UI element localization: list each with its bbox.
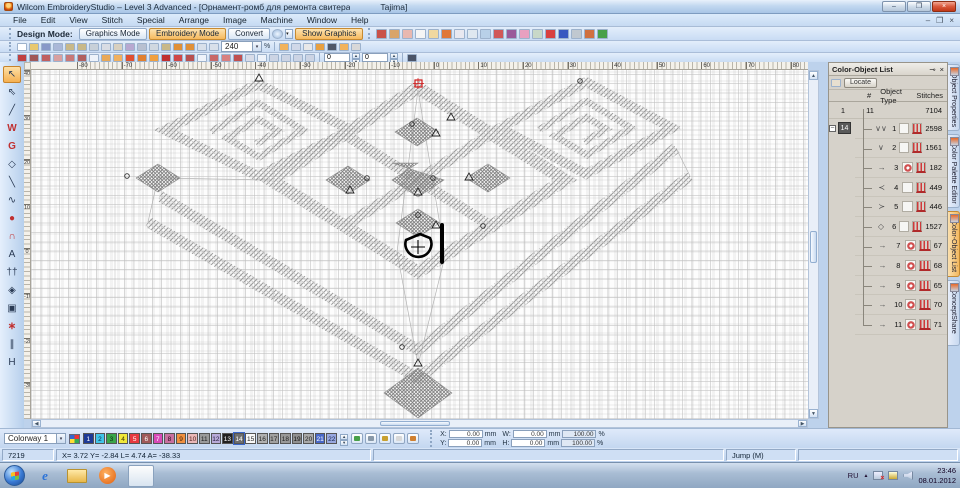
menu-item[interactable]: Window <box>300 14 344 27</box>
redo-icon[interactable] <box>185 43 195 51</box>
color-swatch[interactable]: 14 <box>234 433 245 444</box>
ruler-label: -20 <box>24 338 30 383</box>
object-stitch-count: 65 <box>934 281 947 290</box>
object-number: 4 <box>891 183 902 192</box>
import-icon[interactable] <box>65 43 75 51</box>
stemstitch-icon[interactable] <box>65 54 75 62</box>
globe-dropdown-icon[interactable]: ▾ <box>285 29 293 39</box>
object-shape-glyph: ∨∨ <box>873 124 889 133</box>
zoom-combo[interactable]: 240 ▾ <box>221 41 262 52</box>
buddy-tool[interactable]: †† <box>3 264 21 281</box>
toolbar-separator <box>402 53 403 62</box>
vertical-scroll-thumb[interactable] <box>810 231 817 263</box>
object-number: 8 <box>892 261 904 270</box>
ruler-label: 0 <box>434 62 479 69</box>
skew-stepper[interactable]: ▲▼ <box>390 53 398 63</box>
sculpture-run-icon[interactable] <box>77 54 87 62</box>
object-stitch-count: 1561 <box>925 143 947 152</box>
stitch-toolbar: ▲▼ ▲▼ <box>0 53 960 62</box>
sep2[interactable] <box>197 54 207 62</box>
filter-icon[interactable] <box>327 43 337 51</box>
ruler-label: 40 <box>612 62 657 69</box>
zoom-box-icon[interactable] <box>197 43 207 51</box>
motif-run-icon[interactable] <box>41 54 51 62</box>
title-bar: Wilcom EmbroideryStudio – Level 3 Advanc… <box>0 0 960 14</box>
color-swatch[interactable]: 13 <box>222 433 233 444</box>
object-shape-glyph: → <box>873 241 892 250</box>
locate-button[interactable]: Locate <box>844 78 877 88</box>
col-stitches[interactable]: Stitches <box>916 91 947 100</box>
paste-icon[interactable] <box>161 43 171 51</box>
ruler-label: -70 <box>122 62 167 69</box>
object-shape-glyph: → <box>873 261 892 270</box>
object-stitch-count: 67 <box>934 241 947 250</box>
summary-row[interactable]: 1 11 7104 <box>829 102 947 119</box>
zoom-icon[interactable] <box>209 43 219 51</box>
hoop-globe-icon[interactable] <box>272 29 283 39</box>
col-number[interactable]: # <box>867 91 880 100</box>
color-swatch[interactable]: 9 <box>176 433 187 444</box>
show-picture-icon[interactable] <box>480 29 491 39</box>
taskbar: e▶ RU ▲ 23:46 08.01.2012 <box>0 462 960 488</box>
ruler-label: -40 <box>255 62 300 69</box>
scroll-right-icon[interactable]: ▶ <box>798 420 807 427</box>
stitch-type-icon <box>919 299 931 310</box>
color-swatch[interactable]: 4 <box>118 433 129 444</box>
object-shape-glyph: → <box>873 281 892 290</box>
menu-bar: FileEditViewStitchSpecialArrangeImageMac… <box>0 14 960 27</box>
lettering-w-tool[interactable]: W <box>3 120 21 137</box>
write-machine-icon[interactable] <box>125 43 135 51</box>
menu-item[interactable]: Arrange <box>172 14 216 27</box>
menu-item[interactable]: Image <box>216 14 254 27</box>
tab-conceptshare[interactable]: ConceptShare <box>948 280 960 346</box>
convert-button[interactable]: Convert <box>228 28 270 40</box>
color-swatch[interactable]: 15 <box>245 433 256 444</box>
stitch-type-icon <box>916 201 927 212</box>
stitch-type-icon <box>919 260 931 271</box>
ruler-label: 10 <box>478 62 523 69</box>
menu-item[interactable]: Machine <box>254 14 300 27</box>
ruler-label: -30 <box>24 382 30 419</box>
object-type-icon <box>905 299 917 310</box>
zigzag-icon[interactable] <box>137 54 147 62</box>
object-shape-glyph: → <box>873 300 892 309</box>
object-stitch-count: 2598 <box>925 124 947 133</box>
undo-icon[interactable] <box>173 43 183 51</box>
show-flower-icon[interactable] <box>519 29 530 39</box>
plant-icon[interactable] <box>597 29 608 39</box>
swatch-stepper[interactable]: ▲▼ <box>340 434 348 444</box>
color-list-icon[interactable] <box>545 29 556 39</box>
show-grid-icon[interactable] <box>454 29 465 39</box>
color-swatch[interactable]: 19 <box>292 433 303 444</box>
doc-window-control[interactable]: × <box>949 16 954 25</box>
select-tool[interactable]: ↖ <box>3 66 21 83</box>
print-preview-icon[interactable] <box>101 43 111 51</box>
y-field[interactable]: 0.00 <box>448 439 482 447</box>
vertical-scrollbar[interactable]: ▲ ▼ <box>808 70 819 419</box>
object-shape-glyph: ∨ <box>873 143 889 152</box>
mirror-v-icon[interactable] <box>281 54 291 62</box>
satin-icon[interactable] <box>101 54 111 62</box>
ruler-label: -10 <box>24 293 30 338</box>
transparent-icon[interactable] <box>393 433 405 444</box>
colorway-dropdown-icon[interactable]: ▾ <box>56 434 65 443</box>
show-needle-points-icon[interactable] <box>441 29 452 39</box>
scroll-down-icon[interactable]: ▼ <box>809 409 818 418</box>
ruler-label: -60 <box>166 62 211 69</box>
menu-item[interactable]: File <box>6 14 34 27</box>
object-type-icon <box>899 221 909 232</box>
restore-button[interactable]: ❐ <box>907 1 931 12</box>
object-shape-glyph: → <box>873 163 891 172</box>
network-icon[interactable] <box>873 471 883 480</box>
ruler-label: -80 <box>77 62 122 69</box>
close-button[interactable]: × <box>932 1 956 12</box>
ruler-label: 20 <box>24 159 30 204</box>
print-icon[interactable] <box>89 43 99 51</box>
color-swatch[interactable]: 6 <box>141 433 152 444</box>
object-stitch-count: 182 <box>929 163 947 172</box>
ruler-label: 70 <box>746 62 791 69</box>
taskbar-media-player[interactable]: ▶ <box>99 467 116 484</box>
sep1[interactable] <box>89 54 99 62</box>
status-spacer <box>373 449 724 461</box>
object-number: 7 <box>892 241 904 250</box>
ruler-label: 20 <box>523 62 568 69</box>
ellipse-tool[interactable]: ● <box>3 210 21 227</box>
arch-tool[interactable]: ∩ <box>3 228 21 245</box>
fancy-fill-icon[interactable] <box>185 54 195 62</box>
object-stitch-count: 1527 <box>925 222 947 231</box>
pointer-corner-icon[interactable] <box>428 29 439 39</box>
swap-colors-icon[interactable] <box>351 433 363 444</box>
object-type-icon <box>899 123 909 134</box>
embroidery-design <box>31 70 808 419</box>
ruler-label: 10 <box>24 204 30 249</box>
object-rows: – 14 ∨∨ 1 2598 ∨ 2 1561 <box>855 119 947 335</box>
graphics-mode-button[interactable]: Graphics Mode <box>79 28 147 40</box>
colorway-combo[interactable]: Colorway 1 ▾ <box>4 433 66 444</box>
width-percent-field[interactable]: 100.00 <box>562 430 596 438</box>
design-canvas[interactable] <box>31 70 808 419</box>
cabinet-icon[interactable] <box>407 433 419 444</box>
toolbox: ↖⇖╱WG◇╲∿●∩A††◈▣∗∥H <box>0 62 24 428</box>
wave-fill-icon[interactable] <box>221 54 231 62</box>
update-icon[interactable] <box>888 471 898 480</box>
object-number: 6 <box>889 222 899 231</box>
object-shape-glyph: → <box>873 320 892 329</box>
stitch-type-icon <box>912 123 922 134</box>
object-type-icon <box>902 182 913 193</box>
ruler-label: 60 <box>701 62 746 69</box>
skew-field[interactable] <box>362 53 388 62</box>
object-number: 9 <box>892 281 904 290</box>
ruler-label: -50 <box>211 62 256 69</box>
pointer-coordinates: X= 3.72 Y= -2.84 L= 4.74 A= -38.33 <box>56 449 371 461</box>
star-tool[interactable]: ∗ <box>3 318 21 335</box>
tatami-icon[interactable] <box>113 54 123 62</box>
zoom-value[interactable]: 240 <box>222 42 252 51</box>
object-stitch-count: 446 <box>929 202 947 211</box>
lettering-tool[interactable]: A <box>3 246 21 263</box>
tray-expand-icon[interactable]: ▲ <box>864 473 869 479</box>
ruler-label: -30 <box>300 62 345 69</box>
flexi-split-icon[interactable] <box>173 54 183 62</box>
width-field[interactable]: 0.00 <box>513 430 547 438</box>
open-curve-tool[interactable]: ∿ <box>3 192 21 209</box>
toolbar-grip <box>368 28 371 38</box>
toolbar-separator <box>319 53 320 62</box>
stitch-type-icon <box>916 162 927 173</box>
run-stitch-icon[interactable] <box>17 54 27 62</box>
remove-color-icon[interactable] <box>365 433 377 444</box>
object-shape-glyph: ◇ <box>873 222 889 231</box>
shapes-icon[interactable] <box>584 29 595 39</box>
start-button[interactable] <box>4 465 25 486</box>
export-icon[interactable] <box>77 43 87 51</box>
zoom-percent-label: % <box>264 43 270 50</box>
status-spacer <box>798 449 958 461</box>
color-group-badge[interactable]: 14 <box>838 122 851 134</box>
color-swatch[interactable]: 8 <box>164 433 175 444</box>
object-shape-glyph: ≻ <box>873 202 891 211</box>
object-type-icon <box>905 280 917 291</box>
color-swatch[interactable]: 17 <box>269 433 280 444</box>
stitch-type-icon <box>912 221 922 232</box>
language-indicator[interactable]: RU <box>848 471 859 480</box>
stitch-type-icon <box>919 280 931 291</box>
contour-icon[interactable] <box>161 54 171 62</box>
ruler-label: 30 <box>24 115 30 160</box>
list-filter-icon[interactable] <box>831 79 841 87</box>
handle-tool[interactable]: H <box>3 354 21 371</box>
dye-bucket-icon[interactable] <box>379 433 391 444</box>
triple-run-icon[interactable] <box>29 54 39 62</box>
taskbar-explorer[interactable] <box>67 469 87 483</box>
layout-icon[interactable] <box>407 54 417 62</box>
scroll-up-icon[interactable]: ▲ <box>809 71 818 80</box>
design-mode-label: Design Mode: <box>17 29 73 39</box>
auto-scroll-icon[interactable] <box>303 43 313 51</box>
object-type-icon <box>905 260 917 271</box>
e-stitch-icon[interactable] <box>125 54 135 62</box>
ruler-label: 50 <box>657 62 702 69</box>
panel-title-bar: Color-Object List ⊸ × <box>829 63 947 76</box>
machine-name: Tajima] <box>380 2 407 12</box>
zoom-dropdown-icon[interactable]: ▾ <box>252 42 261 51</box>
tab-object-properties[interactable]: Object Properties <box>948 64 960 131</box>
knife-tool[interactable]: ╱ <box>3 102 21 119</box>
stitch-count: 7219 <box>2 449 54 461</box>
height-percent-field[interactable]: 100.00 <box>561 439 595 447</box>
color-swatch[interactable]: 21 <box>315 433 326 444</box>
object-row-11[interactable]: → 11 71 <box>855 315 947 335</box>
polygon-tool[interactable]: ◇ <box>3 156 21 173</box>
show-beads-icon[interactable] <box>493 29 504 39</box>
horizontal-scrollbar[interactable]: ◀ ▶ <box>31 419 808 428</box>
color-swatch[interactable]: 12 <box>211 433 222 444</box>
doc-window-control[interactable]: ❐ <box>936 16 943 25</box>
toolbar-grip <box>9 54 12 61</box>
stitch-type-icon <box>916 182 927 193</box>
status-bar: 7219 X= 3.72 Y= -2.84 L= 4.74 A= -38.33 … <box>0 448 960 462</box>
new-icon[interactable] <box>17 43 27 51</box>
save-icon[interactable] <box>41 43 51 51</box>
object-stitch-count: 68 <box>934 261 947 270</box>
menu-item[interactable]: View <box>62 14 94 27</box>
redraw-icon[interactable] <box>291 43 301 51</box>
standard-toolbar: 240 ▾ % <box>0 41 960 53</box>
color-swatch[interactable]: 16 <box>257 433 268 444</box>
toolbar-grip <box>9 42 12 51</box>
toolbar-separator <box>274 42 275 51</box>
height-field[interactable]: 0.00 <box>511 439 545 447</box>
x-field[interactable]: 0.00 <box>449 430 483 438</box>
object-number: 2 <box>889 143 899 152</box>
scan-icon[interactable] <box>113 43 123 51</box>
clock[interactable]: 23:46 08.01.2012 <box>918 466 956 485</box>
horizontal-scroll-thumb[interactable] <box>380 421 450 426</box>
docker-tab-strip: Object PropertiesColor Palette EditorCol… <box>948 62 960 428</box>
color-object-list-panel: Color-Object List ⊸ × Locate # Object Ty… <box>828 62 948 428</box>
pan-icon[interactable] <box>279 43 289 51</box>
menu-item[interactable]: Help <box>344 14 375 27</box>
tab-color-palette-editor[interactable]: Color Palette Editor <box>948 134 960 208</box>
scroll-left-icon[interactable]: ◀ <box>32 420 41 427</box>
machine-icon[interactable] <box>571 29 582 39</box>
object-type-icon <box>902 162 913 173</box>
object-type-icon <box>899 142 909 153</box>
current-tool-hint: Jump (M) <box>726 449 796 461</box>
menu-item[interactable]: Special <box>130 14 172 27</box>
color-swatch[interactable]: 18 <box>280 433 291 444</box>
colorway-bar: Colorway 1 ▾ 123456789101112131415161718… <box>0 428 960 448</box>
color-swatch[interactable]: 3 <box>106 433 117 444</box>
doc-window-control[interactable]: – <box>926 16 930 25</box>
object-number: 5 <box>891 202 902 211</box>
show-functions-icon[interactable] <box>532 29 543 39</box>
object-number: 10 <box>892 300 904 309</box>
palette-icon[interactable] <box>558 29 569 39</box>
pin-icon[interactable]: ⊸ <box>929 65 935 74</box>
show-shapes-icon[interactable] <box>415 29 426 39</box>
ruler-label: -20 <box>345 62 390 69</box>
color-swatch[interactable]: 2 <box>95 433 106 444</box>
show-outlines-icon[interactable] <box>389 29 400 39</box>
object-stitch-count: 71 <box>934 320 947 329</box>
color-swatch[interactable]: 10 <box>187 433 198 444</box>
reshape-tool[interactable]: ⇖ <box>3 84 21 101</box>
cut-icon[interactable] <box>137 43 147 51</box>
needle-icon[interactable] <box>315 43 325 51</box>
volume-icon[interactable] <box>903 471 913 480</box>
window-title: Wilcom EmbroideryStudio – Level 3 Advanc… <box>17 2 350 12</box>
colorway-palette-icon[interactable] <box>69 434 80 444</box>
ruler-label: 0 <box>24 248 30 293</box>
cross-stitch-icon[interactable] <box>233 54 243 62</box>
stitch-type-icon <box>912 142 922 153</box>
panel-title: Color-Object List <box>832 65 893 74</box>
color-swatch[interactable]: 7 <box>153 433 164 444</box>
spiral-tool[interactable]: ▣ <box>3 300 21 317</box>
ruler-label: 40 <box>24 70 30 115</box>
props-icon[interactable] <box>351 43 361 51</box>
toolbar-grip <box>9 28 12 38</box>
column-headers: # Object Type Stitches <box>829 90 947 102</box>
object-shape-glyph: ≺ <box>873 183 891 192</box>
copy-icon[interactable] <box>149 43 159 51</box>
mode-toolbar: Design Mode: Graphics Mode Embroidery Mo… <box>0 27 960 41</box>
taskbar-ie[interactable]: e <box>35 466 55 486</box>
object-type-icon <box>902 201 913 212</box>
system-tray: RU ▲ 23:46 08.01.2012 <box>848 466 956 485</box>
rotate-stepper[interactable]: ▲▼ <box>352 53 360 63</box>
taskbar-wilcom[interactable] <box>128 465 154 487</box>
col-object-type[interactable]: Object Type <box>880 87 916 105</box>
color-swatch[interactable]: 22 <box>326 433 337 444</box>
stitch-type-icon <box>919 319 931 330</box>
tab-color-object-list[interactable]: Color-Object List <box>948 211 960 277</box>
line-tool[interactable]: ╲ <box>3 174 21 191</box>
show-graphics-button[interactable]: Show Graphics <box>295 28 363 40</box>
rotate-cw-icon[interactable] <box>305 54 315 62</box>
rotate-ccw-icon[interactable] <box>293 54 303 62</box>
colorway-value: Colorway 1 <box>5 434 56 443</box>
save-as-icon[interactable] <box>53 43 63 51</box>
minimize-button[interactable]: – <box>882 1 906 12</box>
object-number: 11 <box>892 320 904 329</box>
object-number: 3 <box>891 163 902 172</box>
ruler-label: -10 <box>389 62 434 69</box>
group-expander-icon[interactable]: – <box>829 125 836 132</box>
monogram-tool[interactable]: G <box>3 138 21 155</box>
transform-fields: X:0.00mm Y:0.00mm W:0.00mm100.00% H:0.00… <box>430 430 605 447</box>
object-type-icon <box>905 240 917 251</box>
sep3[interactable] <box>257 54 267 62</box>
object-number: 1 <box>889 124 899 133</box>
show-dice-icon[interactable] <box>506 29 517 39</box>
menu-item[interactable]: Stitch <box>95 14 130 27</box>
applique-icon[interactable] <box>245 54 255 62</box>
vertical-ruler: 403020100-10-20-30 <box>24 70 31 419</box>
color-swatch[interactable]: 1 <box>83 433 94 444</box>
motif-fill-icon[interactable] <box>149 54 159 62</box>
panel-close-icon[interactable]: × <box>940 65 944 74</box>
color-swatch[interactable]: 11 <box>199 433 210 444</box>
menu-item[interactable]: Edit <box>34 14 63 27</box>
diamond-tool[interactable]: ◈ <box>3 282 21 299</box>
app-icon <box>4 2 13 11</box>
star-fill-icon[interactable] <box>209 54 219 62</box>
backstitch-icon[interactable] <box>53 54 63 62</box>
show-stitches-icon[interactable] <box>376 29 387 39</box>
object-type-icon <box>905 319 917 330</box>
color-swatch[interactable]: 20 <box>303 433 314 444</box>
open-icon[interactable] <box>29 43 39 51</box>
object-stitch-count: 449 <box>929 183 947 192</box>
color-swatch[interactable]: 5 <box>129 433 140 444</box>
hatch-tool[interactable]: ∥ <box>3 336 21 353</box>
stitch-type-icon <box>919 240 931 251</box>
rotate-field[interactable] <box>324 53 350 62</box>
grid-settings-icon[interactable] <box>467 29 478 39</box>
show-appliique-icon[interactable] <box>402 29 413 39</box>
mirror-h-icon[interactable] <box>269 54 279 62</box>
embroidery-mode-button[interactable]: Embroidery Mode <box>149 28 226 40</box>
operator-icon[interactable] <box>339 43 349 51</box>
